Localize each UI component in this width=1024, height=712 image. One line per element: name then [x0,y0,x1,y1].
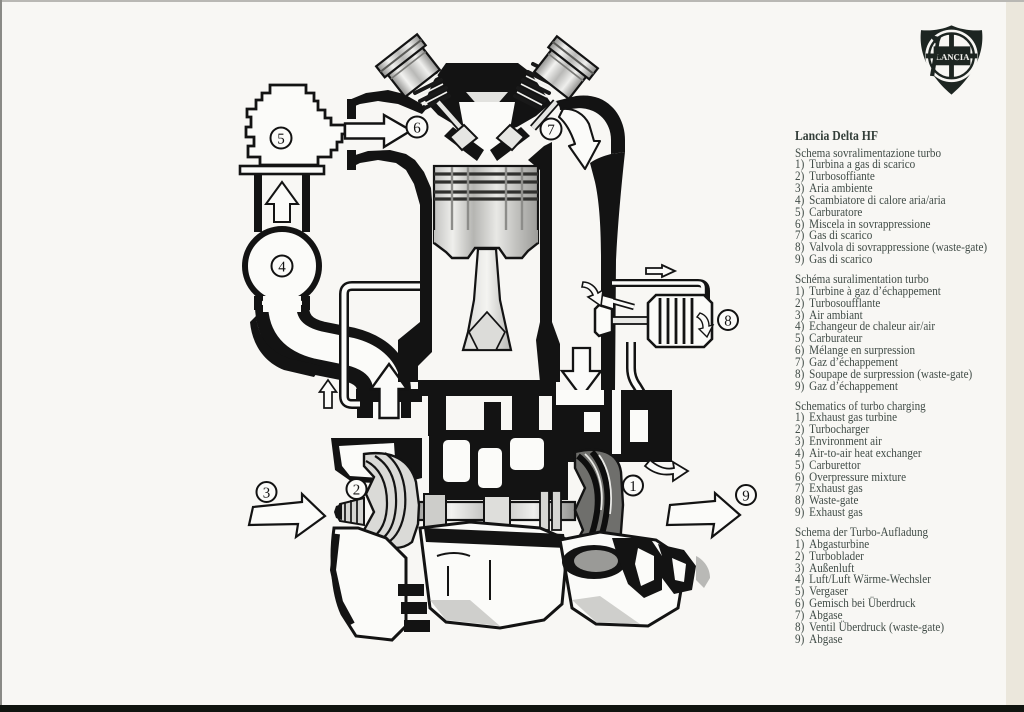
svg-text:2: 2 [353,483,361,499]
svg-text:8: 8 [724,314,732,330]
svg-text:7: 7 [547,123,555,139]
svg-text:9: 9 [742,489,750,505]
svg-text:1: 1 [629,479,637,495]
svg-text:3: 3 [263,486,271,502]
svg-text:5: 5 [277,132,285,148]
svg-text:LANCIA: LANCIA [935,52,969,61]
svg-text:6: 6 [413,121,421,137]
svg-text:4: 4 [278,260,286,276]
